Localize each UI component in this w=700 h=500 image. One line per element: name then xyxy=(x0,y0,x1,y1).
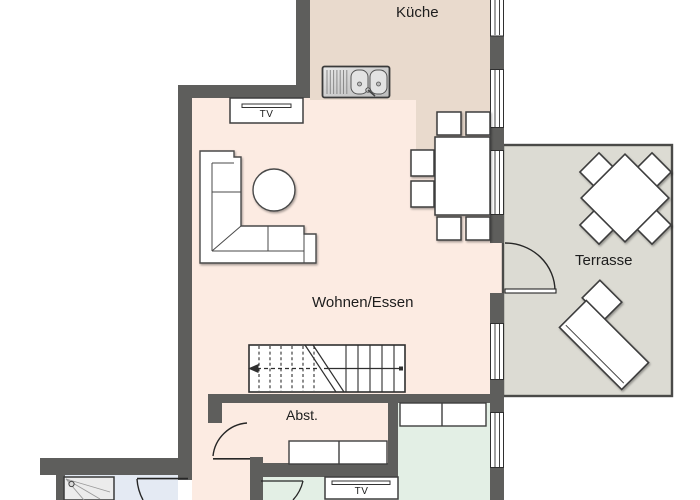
tv-label-living: TV xyxy=(230,109,303,120)
wall-storage-bottom xyxy=(250,463,398,477)
wall-bottom-left xyxy=(40,458,192,475)
wall-below-stairs xyxy=(208,394,490,403)
dining-chair xyxy=(411,181,434,207)
dining-chair xyxy=(437,112,461,135)
wall-right-segment xyxy=(490,468,504,500)
stairs-walk-line-end xyxy=(399,367,403,371)
dining-chair xyxy=(411,150,434,176)
wall-right-segment xyxy=(490,293,504,323)
wall-right-segment xyxy=(490,36,504,69)
sink-drain-icon xyxy=(358,82,362,86)
sink-drain-icon xyxy=(377,82,381,86)
room-label-storage: Abst. xyxy=(286,407,318,423)
terrace-dining-set xyxy=(580,153,671,244)
wall-living-top xyxy=(178,85,310,98)
wall-right-segment xyxy=(490,128,504,150)
tv-screen-icon xyxy=(332,481,390,485)
wall-right-segment xyxy=(490,215,504,243)
wall-right-segment xyxy=(490,380,504,412)
green-room-cabinet xyxy=(400,403,486,426)
bathroom-door-threshold xyxy=(178,480,192,500)
room-label-kitchen: Küche xyxy=(396,4,439,21)
tv-screen-icon xyxy=(242,104,291,108)
room-label-living: Wohnen/Essen xyxy=(312,294,413,311)
window xyxy=(491,70,504,128)
wall-kitchen-left xyxy=(296,0,310,98)
dining-table xyxy=(435,137,490,215)
wall-storage-left xyxy=(208,403,222,423)
shower xyxy=(64,477,114,500)
coffee-table xyxy=(253,169,295,211)
wall-storage-right xyxy=(388,394,398,477)
shower-head-icon xyxy=(69,481,74,486)
window xyxy=(491,151,504,215)
window xyxy=(491,413,504,468)
window xyxy=(491,0,504,36)
floor-plan-drawing xyxy=(0,0,700,500)
dining-chair xyxy=(466,112,490,135)
window xyxy=(491,324,504,380)
sink-drainboard xyxy=(327,70,347,94)
storage-cabinet xyxy=(289,441,387,464)
dining-chair xyxy=(437,217,461,240)
tv-label-lower: TV xyxy=(325,486,398,497)
room-label-terrace: Terrasse xyxy=(575,252,633,269)
staircase xyxy=(248,345,405,392)
wall-left xyxy=(178,85,192,480)
dining-chair xyxy=(466,217,490,240)
kitchen-sink xyxy=(323,67,390,98)
floor-plan: Küche Wohnen/Essen Terrasse Abst. TV TV xyxy=(0,0,700,500)
